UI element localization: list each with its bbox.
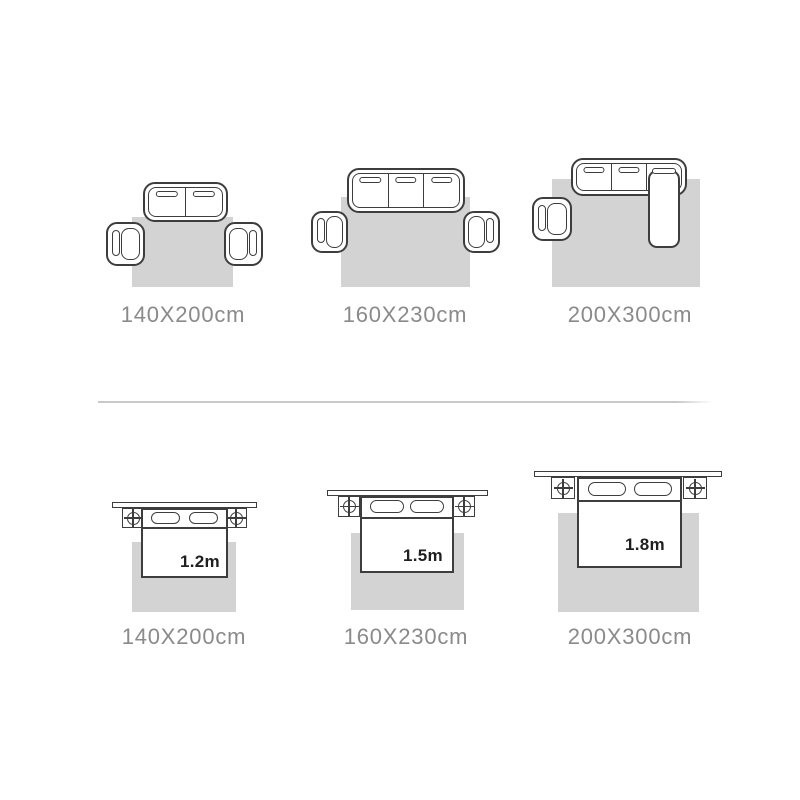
rug	[132, 217, 233, 287]
armchair-back-cushion	[112, 230, 120, 256]
bedside-lamp-icon	[557, 482, 570, 495]
size-label: 160X230cm	[320, 302, 490, 328]
sofa	[347, 168, 465, 213]
sofa-seat	[353, 174, 388, 207]
headboard	[534, 471, 722, 477]
bed-width-label: 1.8m	[615, 535, 675, 555]
sofa-seat	[388, 174, 424, 207]
size-label: 160X230cm	[321, 624, 491, 650]
sofa-seat	[185, 188, 222, 216]
bedside-lamp-icon	[230, 512, 243, 525]
sofa-pillow	[652, 168, 676, 174]
rug-size-guide: 140X200cm 160X230cm	[0, 0, 800, 800]
nightstand	[551, 477, 575, 499]
size-label: 200X300cm	[545, 624, 715, 650]
nightstand	[225, 508, 247, 528]
size-label: 140X200cm	[98, 302, 268, 328]
sofa-cushions	[148, 187, 223, 217]
bed-pillow	[370, 500, 404, 513]
bed-fold-line	[143, 527, 226, 529]
nightstand	[338, 496, 360, 517]
headboard	[327, 490, 488, 496]
bed-pillow	[634, 482, 672, 496]
bedside-lamp-icon	[127, 512, 140, 525]
armchair-back-cushion	[317, 218, 325, 243]
bed-width-label: 1.2m	[170, 552, 230, 572]
armchair-seat-cushion	[121, 228, 140, 261]
armchair-seat-cushion	[229, 228, 248, 261]
armchair	[106, 222, 145, 266]
armchair	[463, 211, 500, 253]
armchair	[224, 222, 263, 266]
armchair-back-cushion	[538, 205, 546, 231]
chaise-lounge	[648, 170, 680, 248]
nightstand	[683, 477, 707, 499]
armchair-seat-cushion	[468, 216, 485, 247]
bedside-lamp-icon	[343, 500, 356, 513]
bed-pillow	[410, 500, 444, 513]
headboard	[112, 502, 257, 508]
sofa-pillow	[156, 191, 178, 197]
bed-fold-line	[362, 517, 452, 519]
bed-pillow	[588, 482, 626, 496]
size-label: 140X200cm	[99, 624, 269, 650]
sofa-seat	[577, 164, 611, 190]
armchair-seat-cushion	[326, 216, 343, 247]
bed-arrangement-200x300: 1.8m 200X300cm	[0, 0, 800, 800]
bedside-lamp-icon	[458, 500, 471, 513]
sofa-pillow	[395, 177, 416, 183]
nightstand	[453, 496, 475, 517]
sofa-pillow	[431, 177, 452, 183]
sofa-seat	[423, 174, 459, 207]
size-label: 200X300cm	[545, 302, 715, 328]
armchair-back-cushion	[249, 230, 257, 256]
armchair-seat-cushion	[547, 203, 567, 236]
bed: 1.8m	[577, 477, 682, 568]
sofa-cushions	[352, 173, 460, 208]
sofa-pillow	[193, 191, 215, 197]
bed-pillow	[189, 512, 218, 524]
sofa-seat	[611, 164, 646, 190]
bed: 1.2m	[141, 508, 228, 578]
sofa-seat	[149, 188, 185, 216]
bed-pillow	[151, 512, 180, 524]
sofa-pillow	[583, 167, 604, 173]
armchair	[532, 197, 572, 241]
sofa	[143, 182, 228, 222]
bedside-lamp-icon	[689, 482, 702, 495]
bed: 1.5m	[360, 496, 454, 573]
sofa-pillow	[618, 167, 639, 173]
armchair	[311, 211, 348, 253]
sofa-pillow	[360, 177, 381, 183]
armchair-back-cushion	[486, 218, 494, 243]
bed-fold-line	[579, 500, 680, 502]
bed-width-label: 1.5m	[393, 546, 453, 566]
